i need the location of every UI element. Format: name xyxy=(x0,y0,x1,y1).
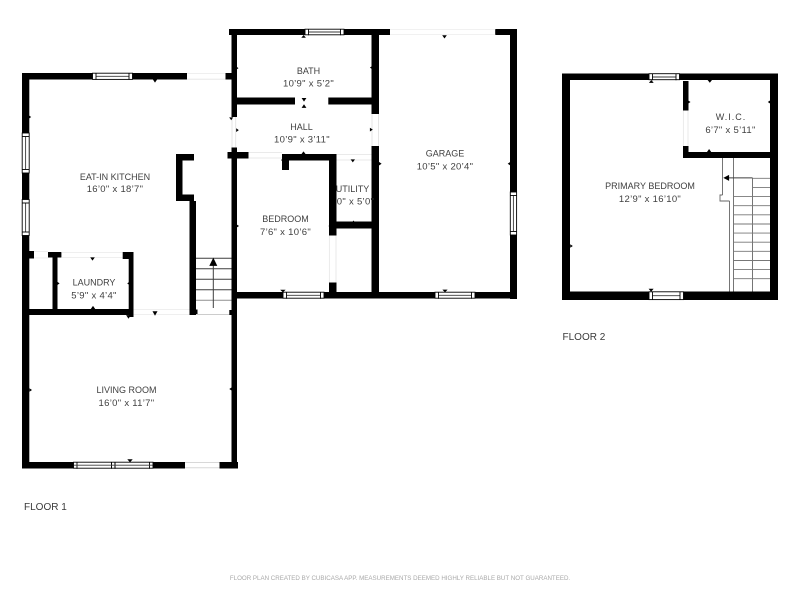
svg-text:5’9" x 4’4": 5’9" x 4’4" xyxy=(71,291,116,302)
svg-text:6’7" x 5’11": 6’7" x 5’11" xyxy=(705,125,755,136)
svg-text:LIVING ROOM: LIVING ROOM xyxy=(96,385,156,395)
svg-text:10’9" x 5’2": 10’9" x 5’2" xyxy=(283,79,334,90)
svg-text:10’9" x 3’11": 10’9" x 3’11" xyxy=(274,135,330,146)
svg-text:LAUNDRY: LAUNDRY xyxy=(73,278,116,288)
svg-text:10’5" x 20’4": 10’5" x 20’4" xyxy=(417,162,474,173)
svg-text:7’6" x 10’6": 7’6" x 10’6" xyxy=(260,227,311,238)
svg-text:12’9" x 16’10": 12’9" x 16’10" xyxy=(619,194,681,205)
svg-text:HALL: HALL xyxy=(290,122,313,132)
svg-text:GARAGE: GARAGE xyxy=(426,149,465,159)
svg-text:W.I.C.: W.I.C. xyxy=(716,112,747,122)
svg-text:EAT-IN KITCHEN: EAT-IN KITCHEN xyxy=(80,172,150,182)
svg-text:UTILITY: UTILITY xyxy=(336,184,370,194)
svg-text:16’0" x 11’7": 16’0" x 11’7" xyxy=(99,398,155,409)
svg-text:16’0" x 18’7": 16’0" x 18’7" xyxy=(87,184,144,195)
svg-text:PRIMARY BEDROOM: PRIMARY BEDROOM xyxy=(605,181,695,191)
svg-text:FLOOR 2: FLOOR 2 xyxy=(563,332,606,343)
svg-text:FLOOR 1: FLOOR 1 xyxy=(24,502,67,513)
svg-text:BATH: BATH xyxy=(297,66,320,76)
svg-text:BEDROOM: BEDROOM xyxy=(262,214,309,224)
svg-text:FLOOR PLAN CREATED BY CUBICASA: FLOOR PLAN CREATED BY CUBICASA APP. MEAS… xyxy=(230,575,571,582)
